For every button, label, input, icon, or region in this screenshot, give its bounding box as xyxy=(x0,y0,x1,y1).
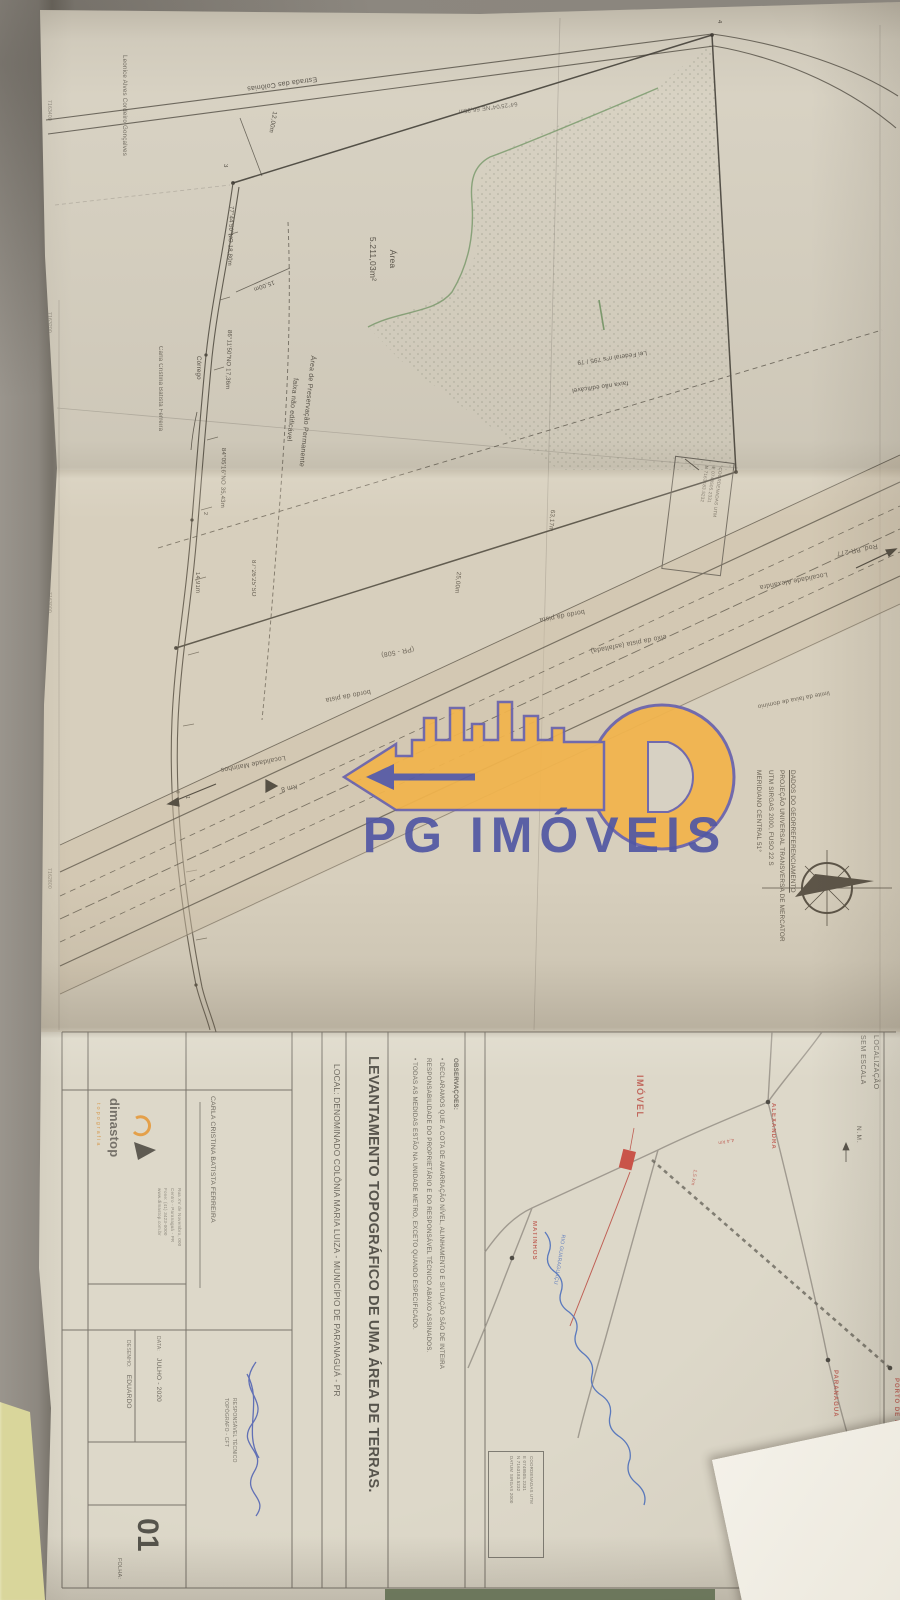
watermark-brand-text: PG IMÓVEIS xyxy=(330,806,760,864)
key-shaft-skyline xyxy=(344,702,604,810)
watermark-key-logo xyxy=(0,0,900,1600)
photo-of-survey-document: Leonice Alves Cordeiro Gonçalves Estrada… xyxy=(0,0,900,1600)
